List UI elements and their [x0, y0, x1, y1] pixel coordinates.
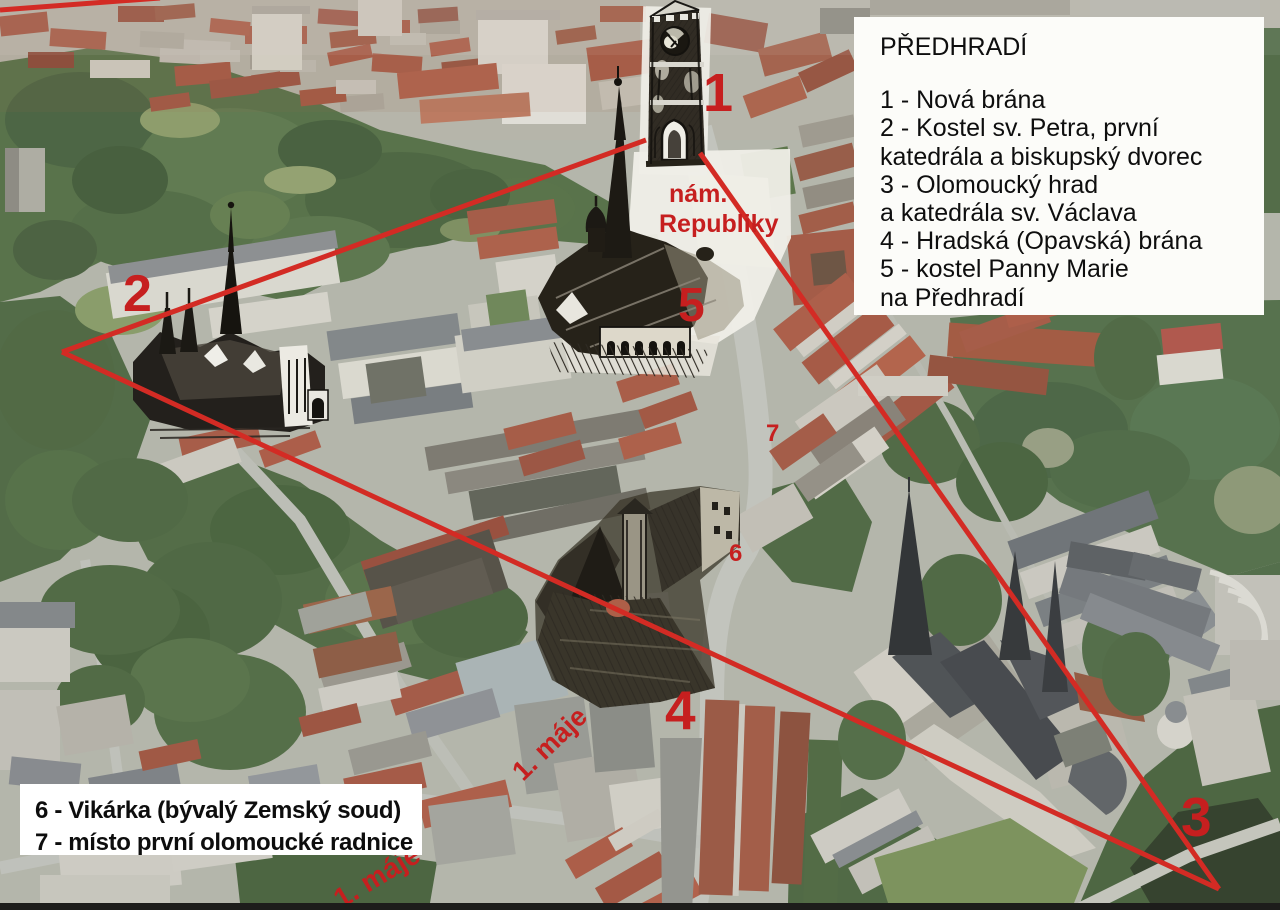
svg-text:2: 2	[123, 265, 152, 323]
svg-text:nám.: nám.	[669, 180, 727, 208]
svg-text:7: 7	[766, 420, 779, 447]
svg-text:4: 4	[665, 679, 696, 741]
svg-text:3: 3	[1181, 786, 1212, 848]
svg-text:6: 6	[729, 540, 742, 567]
svg-text:5: 5	[678, 279, 705, 332]
svg-text:1: 1	[703, 63, 733, 123]
svg-text:Republiky: Republiky	[659, 210, 779, 238]
